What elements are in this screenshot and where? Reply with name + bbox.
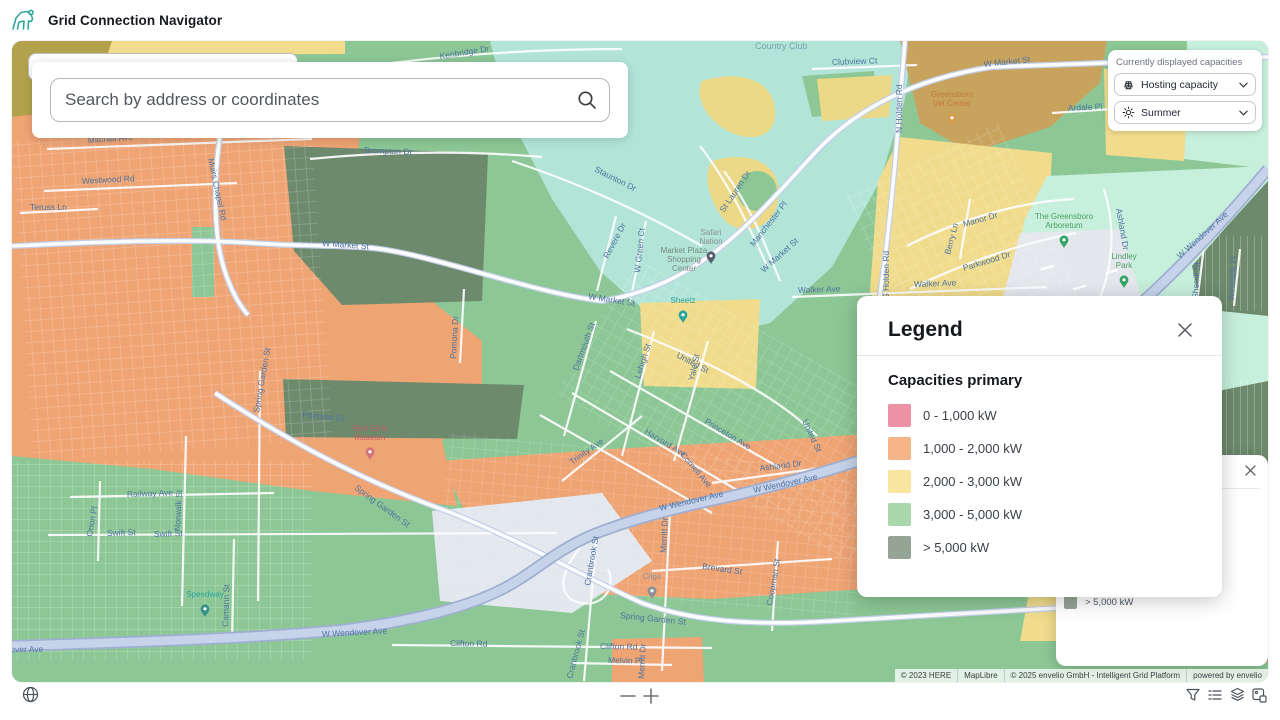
legend-swatch (888, 503, 911, 526)
legend-item-label: > 5,000 kW (1085, 597, 1133, 608)
legend-title: Legend (888, 318, 963, 342)
poi-label: Shopping (667, 255, 701, 264)
legend-item: 3,000 - 5,000 kW (888, 503, 1191, 526)
legend-item: > 5,000 kW (1064, 596, 1133, 609)
capacity-panel: Currently displayed capacities Hosting c… (1108, 50, 1262, 131)
legend-item: > 5,000 kW (888, 536, 1191, 559)
zoom-in-button[interactable] (643, 688, 659, 704)
close-icon[interactable] (1176, 321, 1194, 339)
app-root: Grid Connection Navigator (0, 0, 1280, 720)
poi-label: Citgo (643, 572, 662, 581)
chevron-down-icon (1239, 82, 1248, 88)
road-label: Clifton Rd (450, 638, 488, 649)
road-label: Clifton Rd (600, 641, 638, 652)
poi-label: Lindley (1111, 252, 1136, 261)
app-header: Grid Connection Navigator (0, 0, 1280, 41)
zoom-out-button[interactable] (620, 688, 636, 704)
road-label: Clubview Ct (832, 55, 878, 67)
layers-button[interactable] (1230, 687, 1245, 702)
legend-swatch (1064, 596, 1077, 609)
capacity-type-dropdown[interactable]: Hosting capacity (1114, 73, 1256, 96)
poi-label: Center (672, 264, 696, 273)
image-icon (1252, 688, 1267, 703)
attribution-link[interactable]: © 2023 HERE (895, 669, 957, 682)
chevron-down-icon (1239, 110, 1248, 116)
legend-item: 1,000 - 2,000 kW (888, 437, 1191, 460)
poi-label: Greensboro (931, 90, 974, 99)
season-value: Summer (1141, 107, 1233, 119)
capacity-type-value: Hosting capacity (1141, 79, 1233, 91)
envelio-logo-icon (10, 8, 37, 32)
globe-button[interactable] (22, 686, 39, 703)
attribution-link[interactable]: MapLibre (957, 669, 1003, 682)
attribution-link[interactable]: © 2025 envelio GmbH - Intelligent Grid P… (1004, 669, 1187, 682)
poi-label: Vet Center (933, 99, 971, 108)
legend-panel: Legend Capacities primary 0 - 1,000 kW1,… (857, 296, 1222, 597)
road-label: Walker Ave (798, 284, 841, 295)
search-card (32, 62, 628, 138)
search-input[interactable] (50, 78, 610, 122)
sun-icon (1122, 106, 1135, 119)
legend-swatch (888, 536, 911, 559)
legend-item-label: 2,000 - 3,000 kW (923, 474, 1022, 489)
poi-label: Sheetz (671, 296, 696, 305)
legend-list-button[interactable] (1208, 688, 1222, 702)
road-label: Ardale Pl (1068, 101, 1103, 113)
attribution-link[interactable]: powered by envelio (1186, 669, 1268, 682)
road-label: S Holden Rd (881, 251, 891, 299)
solar-panel-icon (1122, 78, 1135, 91)
road-label: Walker Ave (914, 278, 957, 289)
road-label: W Wendover Ave (12, 644, 44, 655)
legend-item-label: 1,000 - 2,000 kW (923, 441, 1022, 456)
road-label: Teruss Ln (30, 202, 67, 212)
map-canvas[interactable]: Mitchell AveWestwood RdTeruss LnMuirs Ch… (12, 41, 1268, 682)
search-icon[interactable] (576, 89, 598, 111)
road-label: Melvin Pl (608, 655, 643, 666)
layers-icon (1230, 687, 1245, 702)
legend-item: 2,000 - 3,000 kW (888, 470, 1191, 493)
area-label: Country Club (755, 41, 808, 51)
globe-icon (22, 686, 39, 703)
legend-swatch (888, 404, 911, 427)
legend-section-title: Capacities primary (888, 372, 1191, 389)
poi-label: Park (1116, 261, 1133, 270)
road-label: N Holden Rd (894, 84, 904, 133)
road-label: Brompton Dr (364, 145, 413, 157)
poi-label: Nation (699, 237, 722, 246)
filter-button[interactable] (1186, 688, 1200, 702)
legend-item-label: 0 - 1,000 kW (923, 408, 997, 423)
funnel-icon (1186, 688, 1200, 702)
minus-icon (620, 688, 636, 704)
legend-item-label: > 5,000 kW (923, 540, 989, 555)
legend-swatch (888, 470, 911, 493)
plus-icon (643, 688, 659, 704)
road-label: Swift St (107, 527, 137, 538)
legend-item-label: 3,000 - 5,000 kW (923, 507, 1022, 522)
map-attribution: © 2023 HEREMapLibre© 2025 envelio GmbH -… (895, 669, 1268, 682)
close-icon[interactable] (1244, 464, 1257, 477)
legend-swatch (888, 437, 911, 460)
poi-label: Museum (355, 433, 386, 442)
road-label: Merritt Dr (658, 517, 670, 553)
poi-label: Market Plaza (661, 246, 708, 255)
poi-label: Arboretum (1045, 221, 1083, 230)
page-title: Grid Connection Navigator (48, 13, 222, 28)
capacity-panel-label: Currently displayed capacities (1116, 57, 1254, 68)
season-dropdown[interactable]: Summer (1114, 101, 1256, 124)
list-icon (1208, 688, 1222, 702)
basemap-button[interactable] (1252, 688, 1267, 703)
road-label: Railway Ave (127, 487, 174, 499)
poi-label: Speedway (186, 590, 223, 599)
poi-label: The Greensboro (1035, 212, 1094, 221)
poi-label: Rich Girls (353, 424, 388, 433)
poi-label: Safari (701, 228, 722, 237)
road-label: Sherrill St (1190, 261, 1202, 299)
legend-item: 0 - 1,000 kW (888, 404, 1191, 427)
